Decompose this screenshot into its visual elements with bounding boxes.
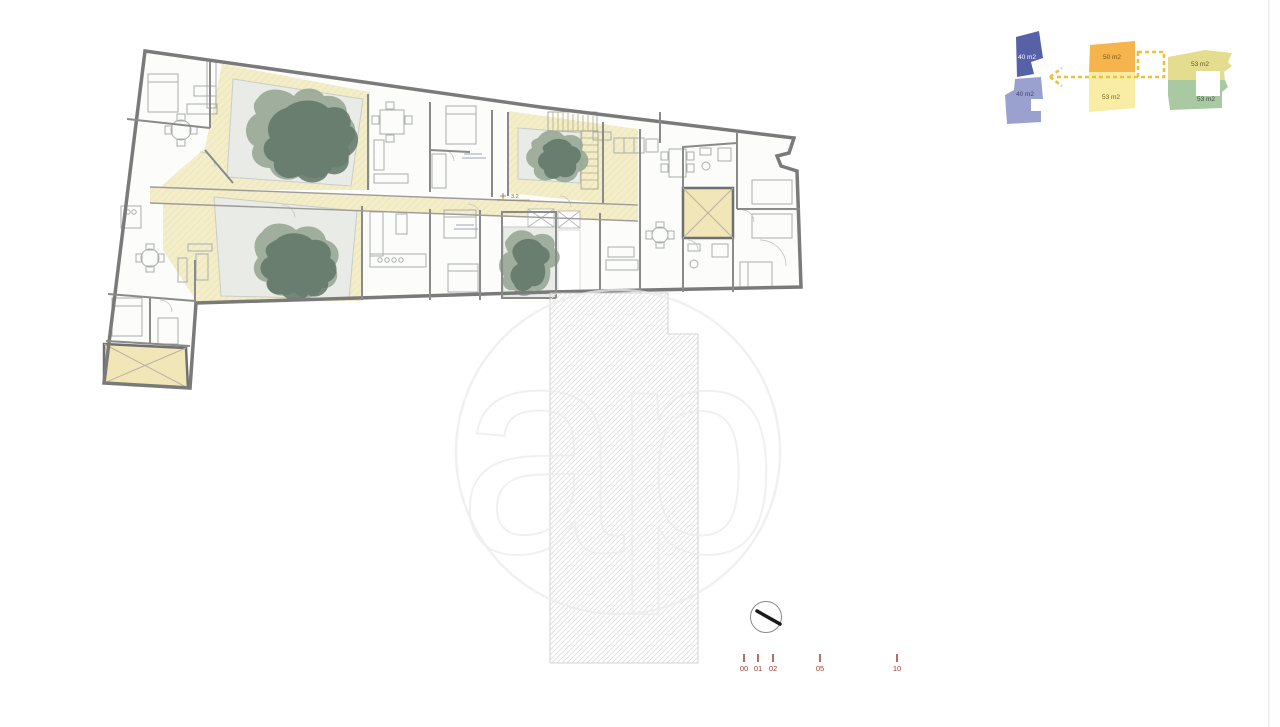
scale-label-1: 01 [754, 664, 762, 673]
floorplan-canvas: 3.2 ap 00 01 02 05 10 [0, 0, 1280, 727]
keyplan-hole [1196, 71, 1220, 96]
patio-bottom-left [104, 344, 188, 388]
keyplan-label-53m2-yellow: 53 m2 [1102, 94, 1120, 101]
compass [751, 602, 782, 633]
scale-label-2: 02 [769, 664, 777, 673]
keyplan-label-53m2-olive: 53 m2 [1191, 61, 1209, 68]
skylight-shaft [683, 188, 733, 238]
keyplan-unit-40m2-lower [1005, 77, 1043, 124]
floorplan-page: 3.2 ap 00 01 02 05 10 [0, 0, 1280, 727]
watermark-logo-text: ap [457, 280, 767, 618]
key-plan: 40 m2 40 m2 50 m2 53 m2 53 m2 53 m2 [1005, 31, 1232, 124]
scale-label-4: 10 [893, 664, 901, 673]
scale-bar: 00 01 02 05 10 [740, 654, 901, 673]
scale-ticks [744, 654, 897, 662]
scale-label-3: 05 [816, 664, 824, 673]
scale-label-0: 00 [740, 664, 748, 673]
keyplan-label-50m2: 50 m2 [1103, 54, 1121, 61]
level-annotation-label: 3.2 [511, 194, 519, 200]
watermark: ap [456, 280, 780, 618]
page-edge-line [1268, 0, 1270, 727]
keyplan-label-40m2-upper: 40 m2 [1018, 54, 1036, 61]
keyplan-label-53m2-green: 53 m2 [1197, 96, 1215, 103]
keyplan-label-40m2-lower: 40 m2 [1016, 91, 1034, 98]
